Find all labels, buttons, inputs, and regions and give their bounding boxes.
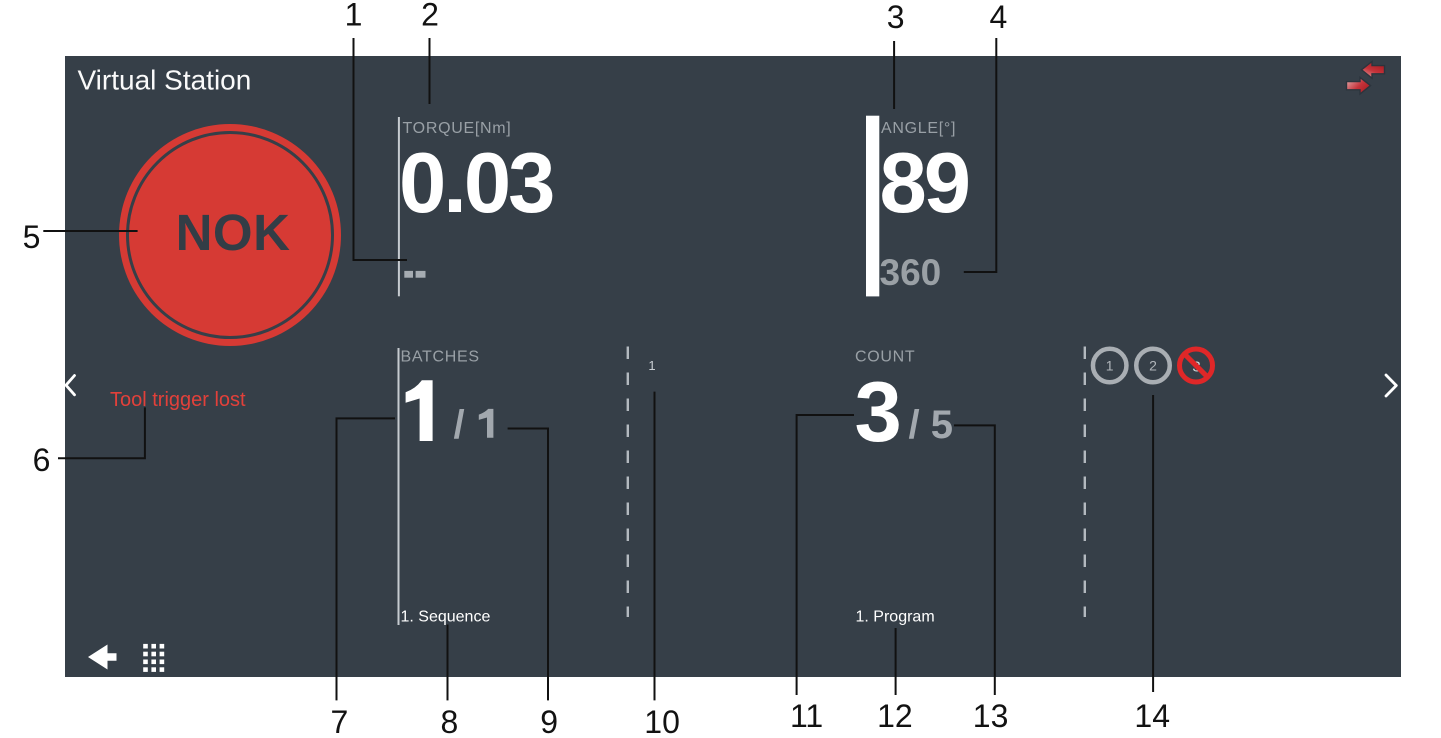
svg-text:TORQUE[Nm]: TORQUE[Nm] (403, 120, 512, 137)
svg-text:13: 13 (973, 698, 1009, 734)
svg-text:8: 8 (441, 704, 459, 738)
svg-text:360: 360 (880, 252, 942, 293)
svg-text:10: 10 (644, 704, 680, 738)
svg-text:9: 9 (540, 704, 558, 738)
svg-text:COUNT: COUNT (855, 349, 915, 366)
svg-text:1: 1 (345, 0, 363, 33)
svg-text:1. Program: 1. Program (856, 609, 935, 626)
svg-text:11: 11 (790, 698, 823, 734)
svg-text:7: 7 (331, 704, 349, 738)
svg-text:Virtual Station: Virtual Station (78, 65, 252, 96)
svg-text:1: 1 (648, 358, 655, 373)
svg-text:5: 5 (23, 219, 41, 255)
svg-text:2: 2 (421, 0, 439, 33)
svg-text:/: / (454, 403, 465, 447)
svg-text:2: 2 (1149, 358, 1157, 374)
svg-text:BATCHES: BATCHES (401, 349, 480, 366)
svg-text:3: 3 (887, 0, 905, 35)
svg-text:NOK: NOK (176, 204, 291, 261)
svg-text:89: 89 (880, 136, 969, 231)
svg-text:14: 14 (1134, 698, 1170, 734)
svg-text:ANGLE[°]: ANGLE[°] (881, 120, 956, 137)
svg-text:6: 6 (33, 442, 51, 478)
svg-text:/ 5: / 5 (909, 403, 953, 447)
svg-text:1. Sequence: 1. Sequence (401, 609, 491, 626)
svg-text:1: 1 (1106, 358, 1114, 374)
svg-text:12: 12 (877, 698, 913, 734)
svg-text:Tool trigger lost: Tool trigger lost (110, 389, 246, 411)
svg-text:4: 4 (990, 0, 1008, 35)
svg-text:3: 3 (855, 365, 902, 460)
svg-text:0.03: 0.03 (399, 136, 553, 231)
